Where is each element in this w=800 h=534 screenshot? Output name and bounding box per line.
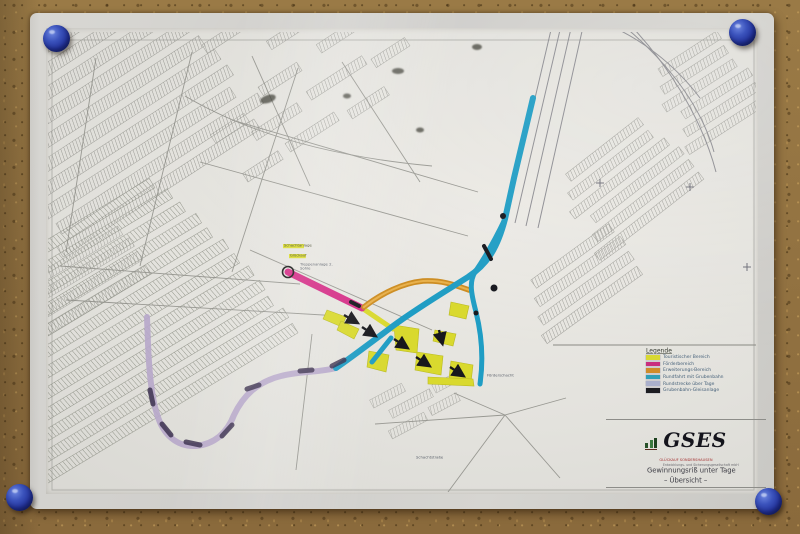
legend-swatch-black [646, 388, 660, 393]
legend-item: Touristischer Bereich [646, 354, 762, 361]
chamber [433, 330, 456, 346]
legend-swatch-teal [646, 375, 660, 380]
legend-swatch-yellow [646, 355, 660, 360]
legend: Legende Touristischer Bereich Förderbere… [646, 347, 762, 394]
divider [606, 419, 766, 420]
divider [606, 487, 766, 488]
legend-item: Förderbereich [646, 361, 762, 368]
legend-swatch-magenta [646, 362, 660, 367]
chamber [394, 325, 419, 353]
chamber [337, 321, 359, 339]
legend-swatch-lavender [646, 381, 660, 386]
brand-name: GSES [663, 430, 726, 450]
legend-item: Grubenbahn-Gleisanlage [646, 387, 762, 394]
route-cyan-branch [471, 219, 505, 384]
push-pin-top-left [43, 25, 70, 52]
route-cyan-main [336, 98, 533, 368]
legend-item: Rundstrecke über Tage [646, 380, 762, 387]
push-pin-bottom-right [755, 488, 782, 515]
photo-of-cork-board: Schachtanlage Glückauf Treppenanlage 2. … [0, 0, 800, 534]
legend-item: Erweiterungs-Bereich [646, 367, 762, 374]
push-pin-bottom-left [6, 484, 33, 511]
legend-title: Legende [646, 347, 710, 351]
chamber [415, 352, 443, 375]
push-pin-top-right [729, 19, 756, 46]
direction-arrows [344, 315, 462, 375]
title-block: GSES GLÜCKAUF SONDERSHAUSEN Entwicklungs… [606, 419, 766, 488]
gses-logo: GSES [606, 428, 766, 450]
chamber [449, 302, 469, 319]
legend-swatch-orange [646, 368, 660, 373]
gses-logo-icon [645, 438, 659, 450]
legend-item: Rundfahrt mit Grubenbahn [646, 374, 762, 381]
